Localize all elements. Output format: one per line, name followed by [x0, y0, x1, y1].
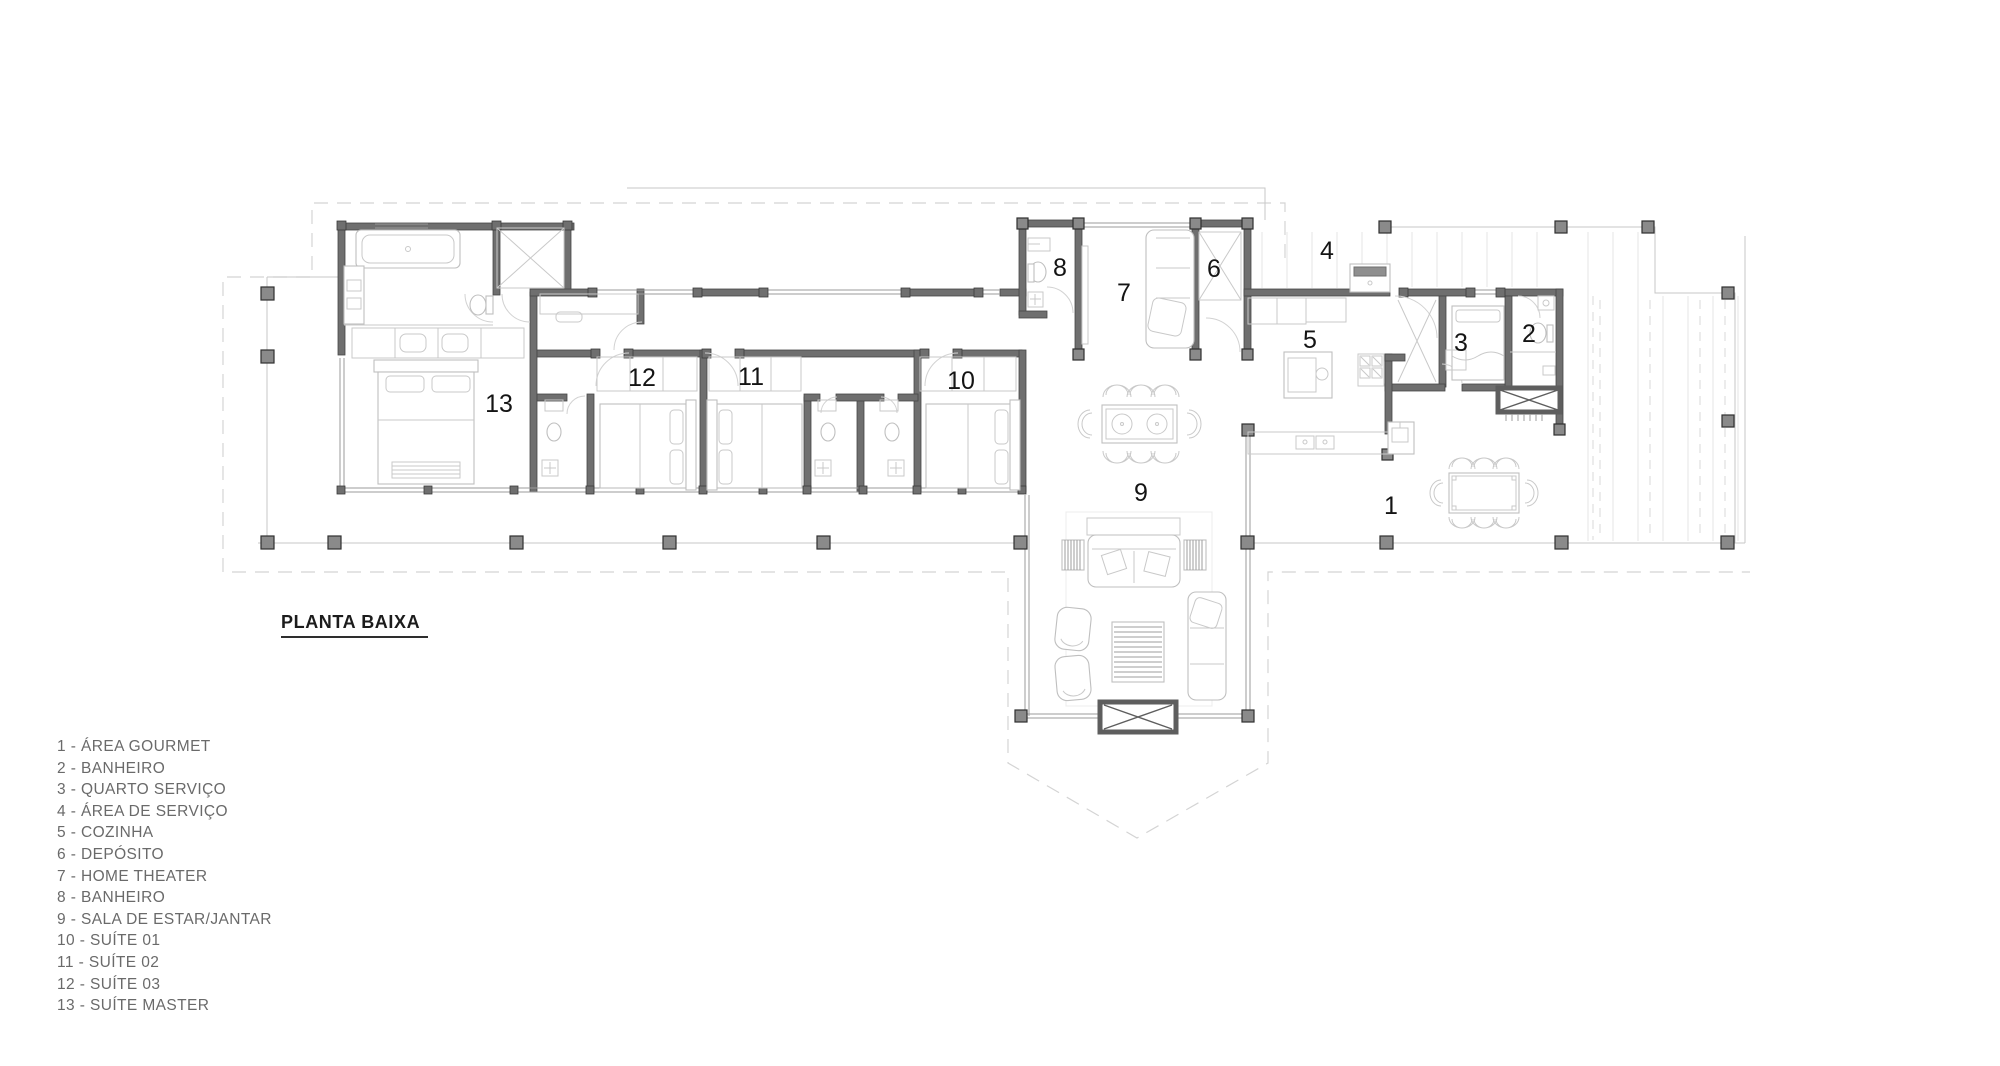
room-label-12: 12	[628, 364, 656, 392]
legend-item-4: 4 - ÁREA DE SERVIÇO	[57, 801, 272, 823]
fireplace	[1100, 702, 1176, 732]
legend-item-2: 2 - BANHEIRO	[57, 758, 272, 780]
room-label-10: 10	[947, 367, 975, 395]
room-label-3: 3	[1454, 329, 1468, 357]
room-label-13: 13	[485, 390, 513, 418]
laundry-tank	[1350, 264, 1390, 292]
legend-item-13: 13 - SUÍTE MASTER	[57, 995, 272, 1017]
legend-item-1: 1 - ÁREA GOURMET	[57, 736, 272, 758]
room-label-5: 5	[1303, 326, 1317, 354]
floor-plan-drawing: 1 2 3 4 5 6 7 8 9 10 11 12 13	[0, 0, 2000, 1066]
room-label-2: 2	[1522, 320, 1536, 348]
furniture	[344, 228, 1560, 732]
legend-item-3: 3 - QUARTO SERVIÇO	[57, 779, 272, 801]
roof-overhang-dashed-outline	[223, 203, 1750, 838]
room-label-8: 8	[1053, 254, 1067, 282]
legend-item-8: 8 - BANHEIRO	[57, 887, 272, 909]
floor-plan-sheet: 1 2 3 4 5 6 7 8 9 10 11 12 13 PLANTA BAI…	[0, 0, 2000, 1066]
legend-item-10: 10 - SUÍTE 01	[57, 930, 272, 952]
grill-box	[1498, 388, 1560, 421]
room-label-4: 4	[1320, 237, 1334, 265]
gourmet-counter	[1388, 422, 1414, 454]
master-closet	[497, 228, 564, 288]
page-title: PLANTA BAIXA	[281, 612, 428, 638]
home-theater-furniture	[1082, 230, 1194, 348]
legend-item-6: 6 - DEPÓSITO	[57, 844, 272, 866]
legend-item-11: 11 - SUÍTE 02	[57, 952, 272, 974]
corridor-bench	[540, 294, 638, 322]
living-room-furniture	[1054, 512, 1226, 706]
room-label-9: 9	[1134, 479, 1148, 507]
bath-8-fixtures	[1028, 238, 1050, 307]
room-label-6: 6	[1207, 255, 1221, 283]
dining-table-gourmet	[1430, 458, 1538, 528]
legend-item-7: 7 - HOME THEATER	[57, 866, 272, 888]
room-label-11: 11	[738, 363, 764, 391]
legend-item-5: 5 - COZINHA	[57, 822, 272, 844]
room-label-7: 7	[1117, 279, 1131, 307]
legend-item-12: 12 - SUÍTE 03	[57, 974, 272, 996]
legend: 1 - ÁREA GOURMET 2 - BANHEIRO 3 - QUARTO…	[57, 736, 272, 1017]
legend-item-9: 9 - SALA DE ESTAR/JANTAR	[57, 909, 272, 931]
room-label-1: 1	[1384, 492, 1398, 520]
deck-outline	[258, 188, 1745, 543]
dining-table-indoor	[1078, 385, 1201, 463]
